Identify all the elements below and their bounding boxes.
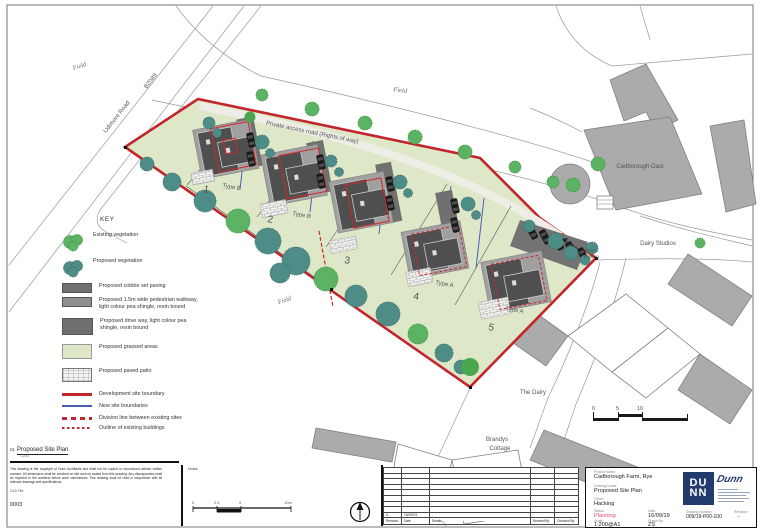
field-label-s: Field bbox=[276, 295, 293, 306]
dunn-logo: DU NN bbox=[683, 472, 714, 505]
key-label: Proposed cobble set paving bbox=[99, 283, 199, 290]
key-label: New site boundaries bbox=[99, 403, 199, 410]
key-label: Outline of existing buildings bbox=[99, 425, 199, 432]
key-item-division-line: Division line between existing sites bbox=[62, 415, 210, 422]
existing-outline-swatch bbox=[62, 427, 92, 429]
divider-line bbox=[10, 461, 179, 463]
paved-patio-swatch bbox=[62, 368, 92, 382]
logo-signature: Dunn bbox=[716, 474, 744, 485]
key-legend: KEY Existing vegetation Proposed vegetat… bbox=[60, 214, 212, 440]
key-item-pedestrian-walkway: Proposed 1.5m wide pedestrian walkway, l… bbox=[62, 297, 210, 311]
driveway-swatch bbox=[62, 318, 93, 335]
road-number-label: B2089 bbox=[144, 72, 160, 90]
key-label: Development site boundary bbox=[99, 391, 199, 398]
dairy-studios-label: Dairy Studios bbox=[640, 241, 676, 247]
cad-file: CAD File: 0003 bbox=[10, 489, 179, 511]
field-label-n: Field bbox=[392, 86, 408, 95]
drawing-ref-scale: 1:200 bbox=[20, 454, 179, 458]
nsb-2-5: 2.5 bbox=[214, 500, 220, 505]
visitors-parking-label-2: parking bbox=[584, 254, 599, 259]
scale-value: 1:200@A1 bbox=[594, 522, 621, 528]
north-arrow-icon bbox=[347, 498, 373, 524]
drawing-number-value: 009/19-P00-100 bbox=[686, 514, 722, 520]
scalebar-label-0: 0 bbox=[592, 406, 595, 412]
drawing-ref-number: 01 bbox=[10, 447, 15, 452]
cad-file-value: 0003 bbox=[10, 502, 22, 508]
key-label: Existing vegetation bbox=[93, 232, 193, 239]
new-site-boundary-swatch bbox=[62, 405, 92, 407]
plan-scale-bar: 0 5 10 bbox=[592, 406, 688, 421]
existing-vegetation-icon bbox=[62, 232, 86, 252]
logo-contact-lines bbox=[718, 489, 752, 504]
brandys-cottage-label-1: Brandys bbox=[486, 437, 508, 443]
notes-scale-bar: 0 2.5 5 10m bbox=[191, 499, 311, 517]
division-line-swatch bbox=[62, 417, 92, 420]
revision-table-panel: A 16/09/19 - - - Revision Date Details R… bbox=[383, 467, 578, 521]
drawing-reference: 01Proposed Site Plan 1:200 bbox=[10, 447, 179, 458]
copyright-disclaimer: This drawing is the copyright of Dunn Ar… bbox=[10, 467, 162, 484]
revision-table: A 16/09/19 - - - Revision Date Details R… bbox=[383, 467, 579, 525]
nsb-10m: 10m bbox=[284, 500, 292, 505]
nsb-0: 0 bbox=[192, 500, 195, 505]
field-label-nw: Field bbox=[71, 61, 88, 72]
key-item-existing-vegetation: Existing vegetation bbox=[62, 232, 210, 252]
visitors-parking-label-1: Visitor's bbox=[582, 248, 598, 253]
walkway-swatch bbox=[62, 297, 92, 307]
key-label: Proposed 1.5m wide pedestrian walkway, l… bbox=[99, 297, 199, 311]
project-name-value: Cadborough Farm, Rye bbox=[594, 474, 652, 480]
revision-header-row: Revision Date Details Revised By Checked… bbox=[384, 518, 579, 525]
key-item-proposed-vegetation: Proposed vegetation bbox=[62, 258, 210, 278]
key-label: Proposed vegetation bbox=[93, 258, 193, 265]
key-title: KEY bbox=[100, 216, 115, 223]
rev-header-revised-by: Revised By bbox=[531, 518, 555, 525]
drawing-sheet: 0 5 10 Field Field Field Udimore Road B2… bbox=[0, 0, 760, 530]
key-label: Proposed grassed areas bbox=[99, 344, 199, 351]
scalebar-label-10: 10 bbox=[637, 406, 643, 412]
revision-label: Revision: bbox=[734, 510, 748, 514]
rev-header-checked-by: Checked By bbox=[555, 518, 579, 525]
notes-disclaimer-panel: 01Proposed Site Plan 1:200 This drawing … bbox=[10, 447, 179, 526]
key-label: Proposed drive way, light colour pea shi… bbox=[100, 318, 200, 332]
rev-header-details: Details bbox=[430, 518, 531, 525]
key-item-development-boundary: Development site boundary bbox=[62, 391, 210, 398]
drawing-name-value: Proposed Site Plan bbox=[594, 488, 642, 494]
nsb-5: 5 bbox=[239, 500, 242, 505]
key-item-new-site-boundaries: New site boundaries bbox=[62, 403, 210, 410]
proposed-vegetation-icon bbox=[62, 258, 86, 278]
key-item-cobble-paving: Proposed cobble set paving bbox=[62, 283, 210, 293]
udimore-road-label: Udimore Road bbox=[103, 100, 132, 134]
key-item-grassed-areas: Proposed grassed areas bbox=[62, 344, 210, 359]
notes-label: Notes: bbox=[188, 467, 198, 471]
key-item-outline-existing: Outline of existing buildings bbox=[62, 425, 210, 432]
client-value: Hacking bbox=[594, 501, 614, 507]
brandys-cottage-label-2: Cottage bbox=[489, 446, 511, 452]
key-label: Proposed paved patio bbox=[99, 368, 199, 375]
logo-letters-2: NN bbox=[690, 489, 708, 498]
drawn-by-value: ZS bbox=[648, 522, 655, 528]
scalebar-label-5: 5 bbox=[616, 406, 619, 412]
key-item-paved-patio: Proposed paved patio bbox=[62, 368, 210, 382]
rev-header-date: Date bbox=[402, 518, 430, 525]
cad-file-label: CAD File: bbox=[10, 489, 179, 493]
the-dairy-label: The Dairy bbox=[520, 390, 546, 396]
key-label: Division line between existing sites bbox=[99, 415, 199, 422]
key-item-driveway: Proposed drive way, light colour pea shi… bbox=[62, 318, 210, 335]
title-block: Project Name: Cadborough Farm, Rye Drawi… bbox=[585, 467, 757, 528]
cadborough-oast-label: Cadborough Oast bbox=[616, 164, 664, 170]
grassed-area-swatch bbox=[62, 344, 92, 359]
rev-header-revision: Revision bbox=[384, 518, 402, 525]
revision-value: - bbox=[738, 514, 740, 520]
development-boundary-swatch bbox=[62, 393, 92, 396]
scale-north-panel: Notes: 0 2.5 5 10m bbox=[181, 465, 383, 526]
cobble-paving-swatch bbox=[62, 283, 92, 293]
